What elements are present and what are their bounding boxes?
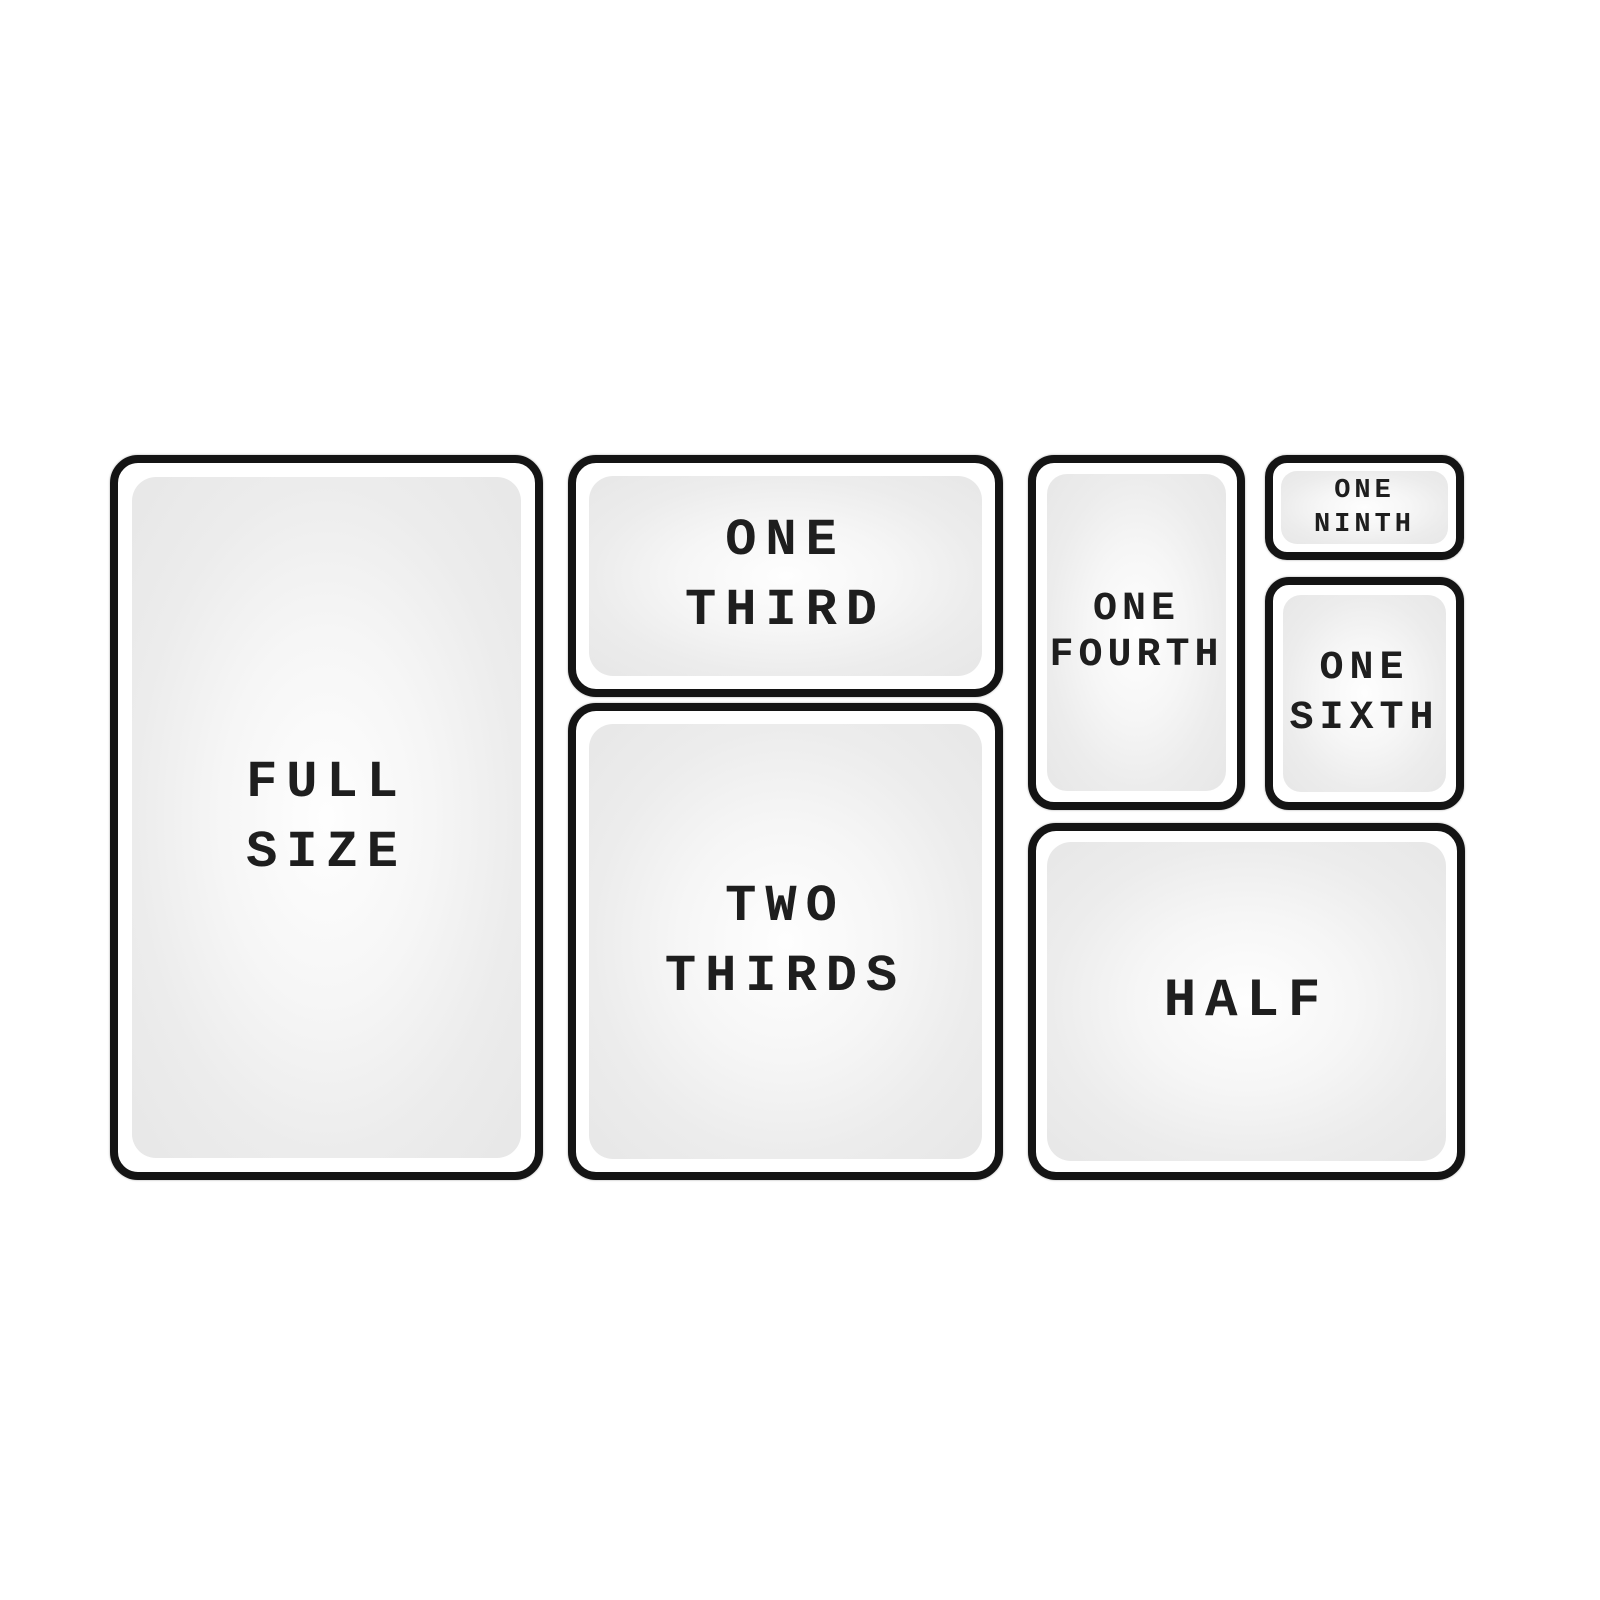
pan-one-fourth-label: ONE FOURTH [1049,587,1223,679]
pan-one-third-label: ONE THIRD [685,506,886,646]
pan-one-third-surface: ONE THIRD [589,476,982,676]
pan-half-surface: HALF [1047,842,1446,1161]
pan-one-fourth-surface: ONE FOURTH [1047,474,1226,791]
pan-size-diagram: FULL SIZE ONE THIRD TWO THIRDS ONE FOURT… [0,0,1600,1600]
pan-one-sixth-surface: ONE SIXTH [1283,595,1446,792]
pan-two-thirds: TWO THIRDS [568,703,1003,1180]
pan-full-size: FULL SIZE [110,455,543,1180]
pan-one-ninth-label: ONE NINTH [1314,474,1415,542]
pan-full-size-surface: FULL SIZE [132,477,521,1158]
pan-two-thirds-surface: TWO THIRDS [589,724,982,1159]
pan-two-thirds-label: TWO THIRDS [665,872,906,1012]
pan-full-size-label: FULL SIZE [246,748,407,888]
pan-one-third: ONE THIRD [568,455,1003,697]
pan-one-ninth: ONE NINTH [1265,455,1464,560]
pan-one-fourth: ONE FOURTH [1028,455,1245,810]
pan-one-sixth: ONE SIXTH [1265,577,1464,810]
pan-one-sixth-label: ONE SIXTH [1289,644,1439,744]
pan-one-ninth-surface: ONE NINTH [1281,471,1448,544]
pan-half-label: HALF [1164,975,1330,1029]
pan-half: HALF [1028,823,1465,1180]
